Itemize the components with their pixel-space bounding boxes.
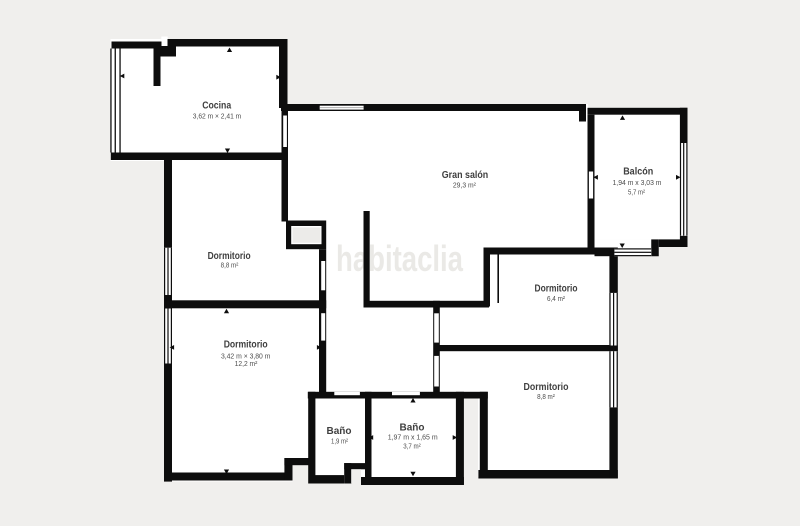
svg-text:Cocina: Cocina xyxy=(202,101,231,112)
svg-text:29,3 m²: 29,3 m² xyxy=(453,181,476,190)
svg-text:Dormitorio: Dormitorio xyxy=(535,284,578,295)
svg-text:12,2 m²: 12,2 m² xyxy=(235,359,258,368)
svg-text:3,62 m × 2,41 m: 3,62 m × 2,41 m xyxy=(193,111,242,120)
svg-text:Baño: Baño xyxy=(327,426,352,437)
svg-text:6,4 m²: 6,4 m² xyxy=(547,294,565,303)
svg-text:1,9 m²: 1,9 m² xyxy=(331,437,348,446)
svg-text:1,94 m x 3,03 m: 1,94 m x 3,03 m xyxy=(613,178,662,187)
svg-text:1,97 m x 1,65 m: 1,97 m x 1,65 m xyxy=(388,432,438,441)
svg-text:Balcón: Balcón xyxy=(623,167,653,178)
svg-text:habitaclia: habitaclia xyxy=(336,238,464,279)
svg-text:3,7 m²: 3,7 m² xyxy=(403,442,421,451)
svg-text:8,8 m²: 8,8 m² xyxy=(221,261,239,270)
svg-text:Dormitorio: Dormitorio xyxy=(224,339,268,350)
svg-text:Gran salón: Gran salón xyxy=(442,169,489,181)
svg-text:8,8 m²: 8,8 m² xyxy=(537,392,555,401)
svg-text:5,7 m²: 5,7 m² xyxy=(628,188,645,197)
